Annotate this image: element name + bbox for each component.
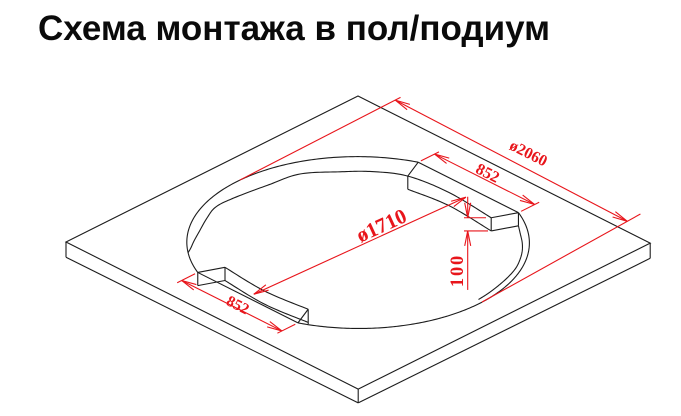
svg-text:852: 852 bbox=[473, 161, 502, 187]
svg-text:ø2060: ø2060 bbox=[507, 137, 550, 170]
svg-text:ø1710: ø1710 bbox=[353, 204, 411, 248]
svg-text:100: 100 bbox=[448, 254, 468, 287]
svg-text:852: 852 bbox=[223, 293, 252, 319]
